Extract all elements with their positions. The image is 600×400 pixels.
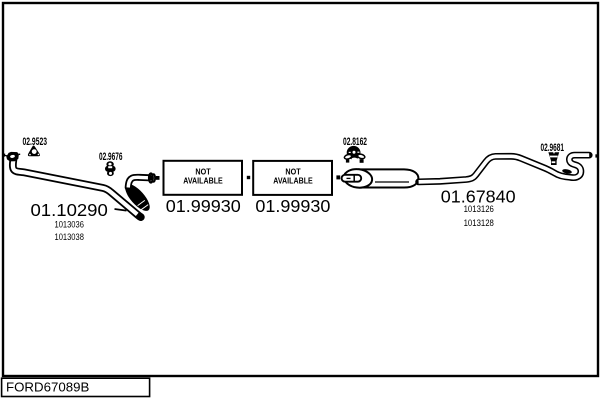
svg-text:01.99930: 01.99930: [166, 196, 241, 216]
svg-text:NOT: NOT: [195, 167, 210, 176]
svg-text:NOT: NOT: [285, 167, 300, 176]
svg-text:1013036: 1013036: [55, 219, 84, 229]
svg-text:AVAILABLE: AVAILABLE: [273, 176, 313, 185]
svg-text:02.9523: 02.9523: [23, 136, 48, 148]
svg-text:01.99930: 01.99930: [255, 196, 330, 216]
svg-text:1013038: 1013038: [55, 232, 84, 242]
svg-text:1013126: 1013126: [464, 204, 494, 214]
svg-text:AVAILABLE: AVAILABLE: [183, 176, 223, 185]
svg-text:1013128: 1013128: [464, 218, 494, 228]
svg-text:FORD67089B: FORD67089B: [6, 380, 89, 395]
svg-text:01.10290: 01.10290: [31, 200, 108, 220]
svg-text:02.9676: 02.9676: [99, 151, 123, 163]
svg-text:02.8162: 02.8162: [343, 136, 367, 148]
